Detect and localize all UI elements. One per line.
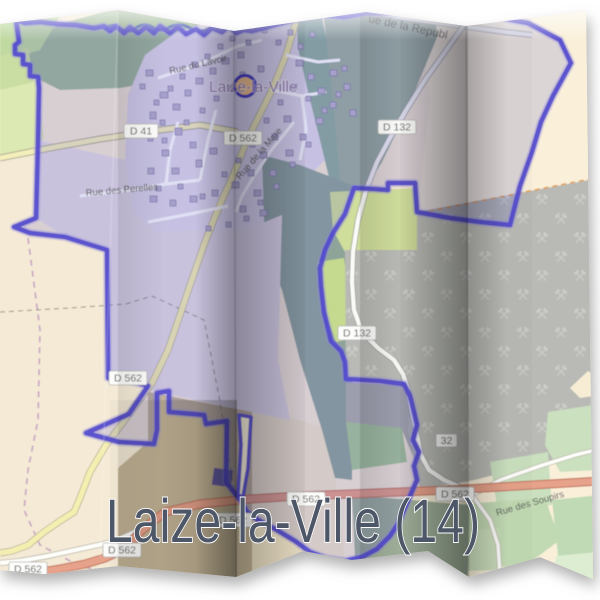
svg-text:Laize-la-Ville (14): Laize-la-Ville (14) (106, 487, 480, 555)
